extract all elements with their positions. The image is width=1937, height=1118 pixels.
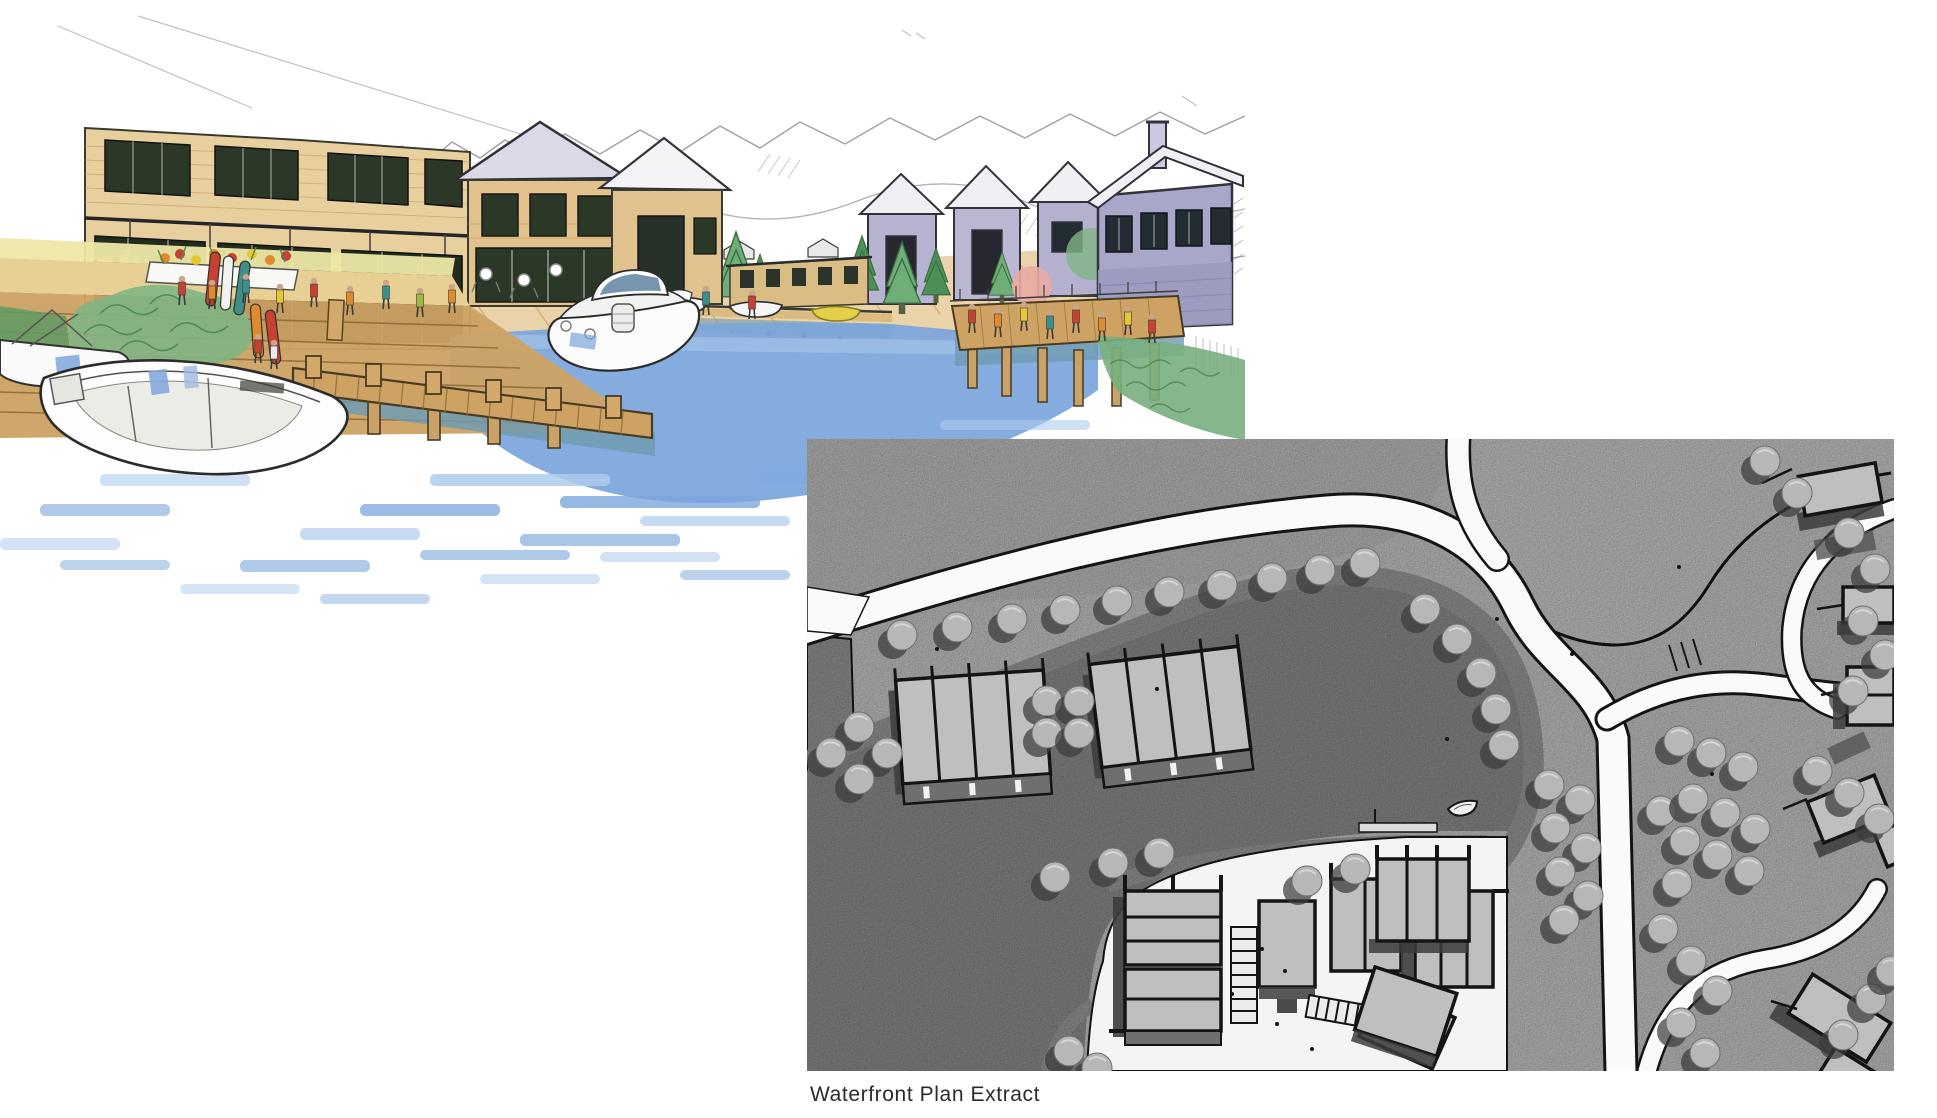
plan-jetty [1359, 823, 1437, 832]
pink-tree [1012, 266, 1052, 306]
grass-bank [1098, 336, 1245, 440]
page: Waterfront Plan Extract [0, 0, 1937, 1118]
stairs-1 [1231, 927, 1257, 1023]
waterfront-plan-extract [807, 439, 1894, 1071]
sky-pencil-lines [58, 16, 1197, 156]
plan-caption: Waterfront Plan Extract [810, 1083, 1040, 1107]
terrace-block-1 [887, 658, 1052, 805]
